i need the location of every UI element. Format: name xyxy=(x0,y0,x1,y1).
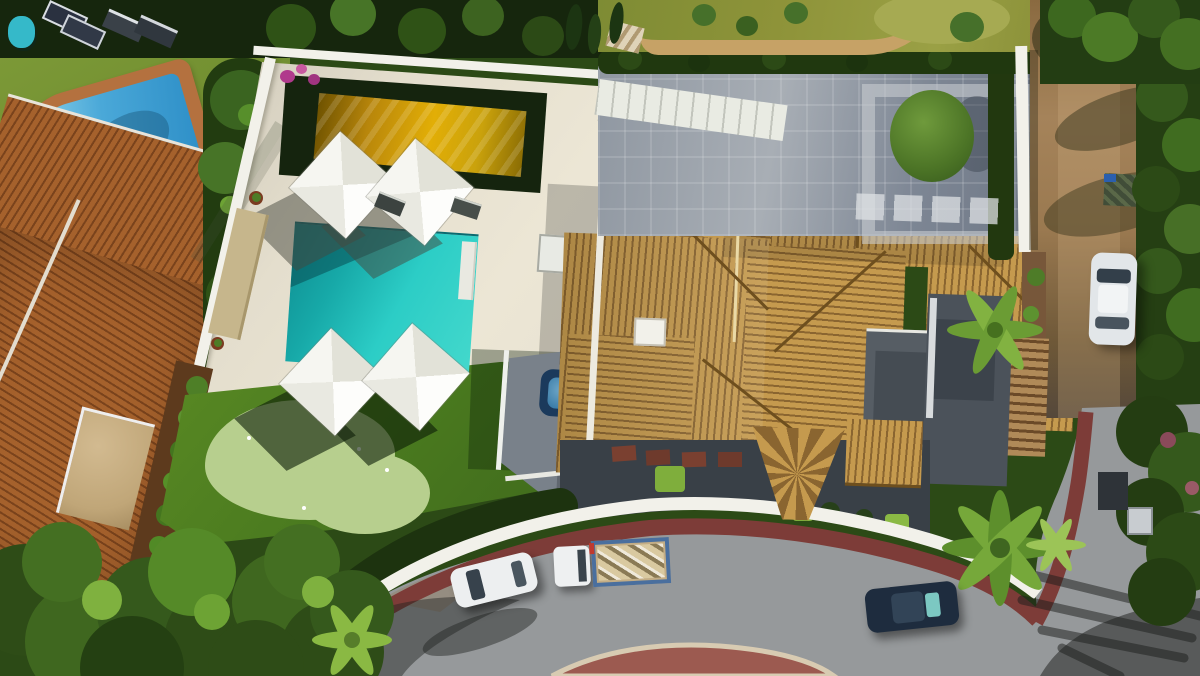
roof-small-right-low xyxy=(845,419,923,489)
bottom-left-tree-cluster xyxy=(0,522,394,676)
gate-dark xyxy=(1098,472,1128,510)
white-driveway-car-windshield xyxy=(1097,268,1131,283)
flatbed-truck xyxy=(553,535,673,591)
palm-crown-pergola xyxy=(947,282,1043,377)
white-driveway-car-rear-window xyxy=(1095,316,1129,329)
white-driveway-car-roof xyxy=(1098,284,1129,313)
aerial-photo-villa xyxy=(0,0,1200,676)
white-driveway-car xyxy=(1088,252,1137,346)
utility-box xyxy=(1128,508,1152,534)
truck-red-marker xyxy=(589,543,595,554)
truck-cargo-texture xyxy=(597,543,665,580)
dark-blue-car-windshield xyxy=(925,592,941,617)
dark-blue-car-roof xyxy=(891,591,926,624)
truck-windshield xyxy=(577,549,587,581)
